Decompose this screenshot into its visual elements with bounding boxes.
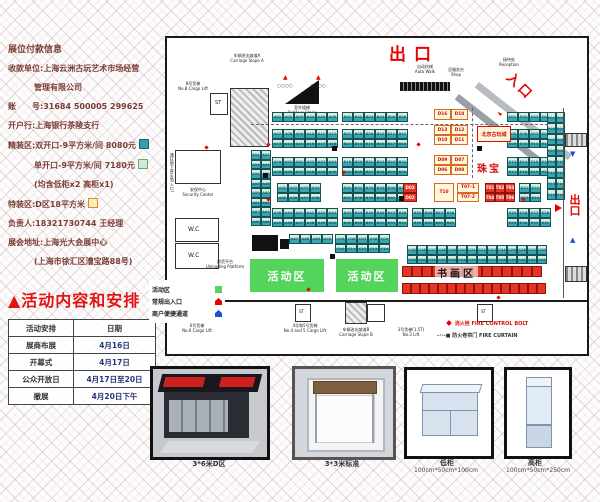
booth-post (372, 394, 374, 443)
booth-cell: B04 (375, 112, 386, 122)
exit-right-label: 出口 (566, 194, 582, 216)
beijing-antique-box: 北京古玩城 (477, 126, 511, 142)
booth-cell: C08 (368, 234, 379, 244)
schedule-row: 公众开放日4月17日至20日 (9, 371, 156, 388)
booth-cell: A27 (294, 167, 305, 177)
booth-cell: D09 (434, 155, 451, 165)
security-room (175, 150, 221, 184)
special-zone-text: 特装区:D区18平方米 (8, 200, 85, 209)
exit-top-label: 出口 (389, 40, 439, 65)
wc-label: W.C (188, 226, 199, 233)
booth-cell (528, 283, 537, 294)
floor-plan: 出口 入口 出口 8号货梯No.8 Cargo Lift ST 车辆进出坡道AC… (165, 36, 589, 356)
booth-block: B43B44B45B46B47B48B49B50B51B52B53B54 (342, 208, 408, 227)
booth-cell: T02 (495, 183, 505, 193)
booth-cell: B50 (353, 218, 364, 228)
booth-cell: T07-1 (457, 183, 479, 193)
booth-cell: B14 (353, 139, 364, 149)
legend-entrance-label: 常规出入口 (152, 297, 212, 306)
booth-cell: B58 (445, 208, 456, 218)
payee-line2: 管理有限公司 (8, 82, 162, 93)
booth-cell: B45 (364, 208, 375, 218)
booth-cell (519, 283, 528, 294)
booth-cell: C11 (346, 244, 357, 254)
booth-cell: A67 (289, 234, 300, 244)
entrance-arrow-icon: ◄ (495, 109, 503, 117)
booth-cell: B13 (342, 139, 353, 149)
booth-block: D16D18 (434, 109, 468, 120)
booth-block: E01E02E03E04 (507, 112, 551, 122)
booth-cell: A70 (322, 234, 333, 244)
booth-cell: C40 (517, 255, 527, 265)
booth-post (315, 394, 317, 443)
double-open-swatch-icon (139, 139, 149, 149)
booth-cell: D02 (403, 193, 417, 203)
slope-b-label: 车辆进出坡道BCarriage Slope B (329, 328, 383, 338)
booth-cell: C29 (407, 255, 417, 265)
shop-label: 总服务台Shop (439, 68, 473, 78)
panel-title: 展位付款信息 (8, 42, 162, 55)
booth-cell: D06 (434, 165, 451, 175)
booth-cell: E03 (529, 112, 540, 122)
booth-cell: C37 (487, 255, 497, 265)
booth-cell: B59 (412, 218, 423, 228)
booth-cell (438, 283, 447, 294)
booth-cell (537, 283, 546, 294)
booth-cell: B43 (342, 208, 353, 218)
price-single-text: 单开口-9平方米/间 7180元 (34, 161, 135, 170)
booth-block: A01A02A03A04A05A06 (272, 112, 338, 122)
booth-wall (315, 395, 376, 443)
booth-roof (158, 374, 263, 392)
booth-block: A67A68A69A70 (289, 234, 333, 244)
booth-cell: T07-2 (457, 193, 479, 203)
booth-cell: A31 (277, 183, 288, 193)
booth-cell: D08 (451, 165, 468, 175)
booth-cell: E07 (529, 129, 540, 139)
account-line: 账 号:31684 500005 299625 (8, 101, 162, 112)
booth-cell: E01 (507, 112, 518, 122)
underground-parking-label: 通往地下停车场(入口) (169, 128, 174, 218)
booth-cell: C09 (379, 234, 390, 244)
escalator-block (565, 266, 587, 282)
booth-cell: A37 (299, 193, 310, 203)
booth-cell: C27 (527, 245, 537, 255)
activity-zone: 活动区 (250, 259, 324, 292)
booth-block: A19A20A21A22A23A24A25A26A27A28A29A30 (272, 157, 338, 176)
booth-cell: A58 (261, 179, 271, 189)
booth-cell: E13 (507, 157, 518, 167)
booth-floor (160, 441, 260, 453)
booth-cell: C15 (407, 245, 417, 255)
booth-cell: E19 (529, 167, 540, 177)
booth-cell (501, 283, 510, 294)
photo-caption-standard: 3*3米标准 (292, 459, 392, 469)
booth-cell: A65 (251, 217, 261, 227)
booth-cell: B23 (386, 157, 397, 167)
booth-cell: F11 (547, 167, 556, 178)
booth-cell: B52 (375, 218, 386, 228)
booth-cell: B37 (342, 193, 353, 203)
fire-bolt-legend: 消火栓 FIRE CONTROL BOLT (447, 320, 528, 327)
fire-curtain-legend-text: 防火卷帘门 FIRE CURTAIN (452, 333, 517, 339)
stage-icon (252, 235, 278, 251)
booth-block: C15C16C17C18C19C20C21C22C23C24C25C26C27C… (407, 245, 547, 264)
schedule-cell: 4月17日至20日 (74, 371, 156, 388)
booth-block: E13E14E15E16E17E18E19E20 (507, 157, 551, 176)
booth-cell: A22 (305, 157, 316, 167)
calligraphy-label: 书画区 (435, 265, 478, 280)
photo-low-cabinet (404, 367, 494, 459)
exit-right-arrow-icon (555, 204, 562, 212)
booth-cell: F07 (547, 145, 556, 156)
booth-cell: C22 (477, 245, 487, 255)
schedule-cell: 公众开放日 (9, 371, 74, 388)
booth-block: T07-1T07-2 (457, 183, 479, 202)
booth-block (402, 283, 546, 294)
booth-cell: B60 (423, 218, 434, 228)
booth-cell: E24 (530, 193, 541, 203)
booth-cell (429, 283, 438, 294)
booth-cell: B51 (364, 218, 375, 228)
booth-cell: C23 (487, 245, 497, 255)
booth-cell: B55 (412, 208, 423, 218)
booth-block: A31A32A33A34A35A36A37A38 (277, 183, 321, 202)
booth-cell: E11 (529, 139, 540, 149)
fire-curtain-icon: –··–■ (437, 333, 451, 339)
booth-cell: C24 (497, 245, 507, 255)
st-label: ST (481, 310, 486, 315)
booth-cell: A33 (299, 183, 310, 193)
schedule-cell: 4月20日下午 (74, 388, 156, 405)
booth-cell: A10 (305, 129, 316, 139)
fire-curtain-line (251, 124, 563, 125)
booth-cell: C06 (346, 234, 357, 244)
fire-curtain-legend: –··–■ 防火卷帘门 FIRE CURTAIN (437, 332, 518, 339)
booth-cell: E10 (518, 139, 529, 149)
bank-line: 开户行:上海银行茶陵支行 (8, 120, 162, 131)
booth-cell: A14 (283, 139, 294, 149)
booth-cell: A36 (288, 193, 299, 203)
booth-cell: A04 (305, 112, 316, 122)
booth-cell: F05 (547, 134, 556, 145)
booth-cell (465, 283, 474, 294)
booth-cell: A63 (251, 207, 261, 217)
booth-cell: A45 (272, 218, 283, 228)
booth-cell: B09 (364, 129, 375, 139)
booth-cell (456, 283, 465, 294)
booth-cell: A46 (283, 218, 294, 228)
booth-cell: A21 (294, 157, 305, 167)
single-open-swatch-icon (138, 159, 148, 169)
booth-cell: A34 (310, 183, 321, 193)
booth-cell: F01 (547, 112, 556, 123)
booth-cell: A59 (251, 188, 261, 198)
booth-cell: B53 (386, 218, 397, 228)
booth-cell: C31 (427, 255, 437, 265)
booth-cell: E31 (529, 218, 540, 228)
booth-cell: C16 (417, 245, 427, 255)
booth-cell: B05 (386, 112, 397, 122)
booth-cell: C14 (379, 244, 390, 254)
bottom-wall (167, 300, 587, 302)
booth-cell: T10 (434, 183, 454, 202)
booth-cell: A60 (261, 188, 271, 198)
pillar-icon (399, 196, 404, 201)
booth-cell: C39 (507, 255, 517, 265)
booth-cell: A49 (316, 218, 327, 228)
merchant-flow-arrow-icon: ▲ (570, 236, 575, 244)
payee-line: 收款单位:上海云洲古玩艺术市场经营 (8, 63, 162, 74)
fire-bolt-icon (446, 320, 452, 326)
booth-cell (411, 283, 420, 294)
booth-cell: B03 (364, 112, 375, 122)
booth-cell: C17 (427, 245, 437, 255)
booth-cell: C36 (477, 255, 487, 265)
booth-block: E25E26E27E28E29E30E31E32 (507, 208, 551, 227)
booth-cell: B17 (386, 139, 397, 149)
booth-cell: B41 (386, 193, 397, 203)
payment-info-panel: 展位付款信息 收款单位:上海云洲古玩艺术市场经营 管理有限公司 账 号:3168… (8, 42, 162, 405)
photo-booth-d-zone (150, 366, 270, 460)
schedule-cell: 展商布展 (9, 337, 74, 354)
booth-cell: D16 (434, 109, 451, 120)
booth-cell (474, 283, 483, 294)
booth-cell: C34 (457, 255, 467, 265)
booth-cell: B47 (386, 208, 397, 218)
booth-cell: A13 (272, 139, 283, 149)
booth-cell: B18 (397, 139, 408, 149)
lift3-room (367, 304, 385, 322)
booth-block: A39A40A41A42A43A44A45A46A47A48A49A50 (272, 208, 338, 227)
booth-cell: B44 (353, 208, 364, 218)
booth-cell: C32 (437, 255, 447, 265)
reception-label: 接待处Reception (489, 58, 529, 68)
booth-block: D03D02 (403, 183, 417, 202)
autowalk-icon (400, 82, 450, 91)
booth-cell: A05 (316, 112, 327, 122)
schedule-cell: 4月16日 (74, 337, 156, 354)
booth-cell: D07 (451, 155, 468, 165)
booth-cell: B02 (353, 112, 364, 122)
lift3-label: 3号货梯(1.5T)No.3 Lift (389, 328, 433, 338)
booth-cell: C42 (537, 255, 547, 265)
merchant-flow-arrow-icon: ▼ (570, 150, 575, 158)
booth-cell: B12 (397, 129, 408, 139)
booth-block: T01T02T03T04T05T06 (485, 183, 515, 202)
booth-block: A07A08A09A10A11A12A13A14A15A16A17A18 (272, 129, 338, 148)
speaker-icon (280, 239, 289, 249)
booth-cell (502, 266, 512, 277)
price-double-line: 精装区:双开口-9平方米/间 8080元 (8, 139, 162, 151)
booth-cell: C26 (517, 245, 527, 255)
booth-cell: A32 (288, 183, 299, 193)
contact-line: 负责人:18321730744 王经理 (8, 218, 162, 229)
activity-zone: 活动区 (336, 259, 398, 292)
booth-cell: A47 (294, 218, 305, 228)
booth-cell: C35 (467, 255, 477, 265)
booth-cell: C18 (437, 245, 447, 255)
booth-cell: A26 (283, 167, 294, 177)
booth-block: C05C06C07C08C09C10C11C12C13C14 (335, 234, 390, 253)
booth-cell: B31 (342, 183, 353, 193)
booth-cell: B39 (364, 193, 375, 203)
schedule-cell: 撤展 (9, 388, 74, 405)
booth-cell: B56 (423, 208, 434, 218)
booth-cell: A15 (294, 139, 305, 149)
booth-cell: E30 (518, 218, 529, 228)
booth-cell: E26 (518, 208, 529, 218)
booth-cell: F13 (547, 178, 556, 189)
booth-cell: D13 (434, 125, 451, 135)
booth-cell: B10 (375, 129, 386, 139)
booth-cell: D18 (451, 109, 468, 120)
booth-cell: A42 (305, 208, 316, 218)
address-line2: (上海市徐汇区漕宝路88号) (8, 256, 162, 267)
booth-cell: C38 (497, 255, 507, 265)
booth-cell: E15 (529, 157, 540, 167)
booth-cell: B19 (342, 157, 353, 167)
booth-cell: A69 (311, 234, 322, 244)
booth-cell: T03 (505, 183, 515, 193)
schedule-table: 活动安排日期展商布展4月16日开幕式4月17日公众开放日4月17日至20日撤展4… (8, 319, 156, 405)
schedule-row: 展商布展4月16日 (9, 337, 156, 354)
booth-cell: B40 (375, 193, 386, 203)
booth-block: B07B08B09B10B11B12B13B14B15B16B17B18 (342, 129, 408, 148)
booth-cell: B29 (386, 167, 397, 177)
booth-cell (532, 266, 542, 277)
booth-cell: B54 (397, 218, 408, 228)
fire-curtain-line (472, 108, 473, 178)
booth-cell: A55 (251, 169, 261, 179)
booth-cell: E21 (519, 183, 530, 193)
booth-cell (420, 283, 429, 294)
booth-cell: B15 (364, 139, 375, 149)
low-cabinet-icon (422, 389, 478, 436)
booth-cell: B01 (342, 112, 353, 122)
booth-cell: B35 (386, 183, 397, 193)
carriage-slope-b (345, 302, 367, 324)
booth-cell: A24 (327, 157, 338, 167)
special-zone-line: 特装区:D区18平方米 (8, 198, 162, 210)
booth-cell: B27 (364, 167, 375, 177)
booth-cell: F03 (547, 123, 556, 134)
booth-cell: A16 (305, 139, 316, 149)
booth-cell: A64 (261, 207, 271, 217)
booth-cell: A11 (316, 129, 327, 139)
booth-cell: C41 (527, 255, 537, 265)
schedule-cell: 活动安排 (9, 320, 74, 337)
beijing-antique-label: 北京古玩城 (481, 131, 506, 138)
booth-cell: B62 (445, 218, 456, 228)
booth-cell: B20 (353, 157, 364, 167)
price-single-line: 单开口-9平方米/间 7180元 (8, 159, 162, 171)
booth-cell: A68 (300, 234, 311, 244)
booth-cell: A07 (272, 129, 283, 139)
booth-cell: C21 (467, 245, 477, 255)
fire-bolt-icon (496, 295, 500, 299)
booth-cell: A28 (305, 167, 316, 177)
jewelry-label: 珠宝 (477, 160, 501, 175)
cargo45-label: 4号和5号货梯No.4 and 5 Cargo Lift (277, 324, 333, 334)
st-label: ST (299, 310, 304, 315)
booth-cell: A02 (283, 112, 294, 122)
booth-cell: A23 (316, 157, 327, 167)
booth-cell: A53 (251, 160, 261, 170)
booth-cell: A12 (327, 129, 338, 139)
booth-cell: C13 (368, 244, 379, 254)
st-label: ST (215, 100, 221, 106)
booth-cell (402, 283, 411, 294)
activity-legend-icon (215, 286, 222, 293)
booth-cell: A48 (305, 218, 316, 228)
booth-cell: C25 (507, 245, 517, 255)
booth-cell: B30 (397, 167, 408, 177)
booth-block: T10 (434, 183, 454, 202)
booth-cell: C20 (457, 245, 467, 255)
booth-cell: A06 (327, 112, 338, 122)
booth-cell: B48 (397, 208, 408, 218)
wc-label: W.C (188, 252, 199, 259)
cargo6-label: 6号货梯No.6 Cargo Lift (175, 324, 219, 334)
booth-cell: A17 (316, 139, 327, 149)
booth-cell (402, 266, 412, 277)
merchant-legend-icon (215, 310, 222, 317)
booth-cell: A44 (327, 208, 338, 218)
booth-cell (492, 266, 502, 277)
booth-cell: B26 (353, 167, 364, 177)
booth-cell: B38 (353, 193, 364, 203)
booth-cell: E02 (518, 112, 529, 122)
booth-cell: A08 (283, 129, 294, 139)
booth-cell: B33 (364, 183, 375, 193)
booth-cell: B06 (397, 112, 408, 122)
booth-cell: T04 (485, 193, 495, 203)
unloading-label: 卸货平台Unloading Platform (203, 260, 247, 270)
photo-caption-d-zone: 3*6米D区 (150, 459, 268, 469)
fire-bolt-icon (416, 142, 420, 146)
booth-cell: B49 (342, 218, 353, 228)
pillar-icon (330, 254, 335, 259)
special-zone-swatch-icon (88, 198, 98, 208)
booth-cell (422, 266, 432, 277)
booth-cell: A57 (251, 179, 261, 189)
booth-cell: A30 (327, 167, 338, 177)
booth-cell: E06 (518, 129, 529, 139)
schedule-heading: ▲活动内容和安排 (8, 287, 162, 311)
booth-cell: E14 (518, 157, 529, 167)
booth-cell: C28 (537, 245, 547, 255)
address-line: 展会地址:上海光大会展中心 (8, 237, 162, 248)
booth-cell (412, 266, 422, 277)
booth-cell: B08 (353, 129, 364, 139)
booth-cell (510, 283, 519, 294)
booth-cell (482, 266, 492, 277)
cabinet-note-line: (均含低柜x2 高柜x1) (8, 179, 162, 190)
booth-cell: C30 (417, 255, 427, 265)
booth-body (164, 392, 248, 438)
photo-size-low: 100cm*50cm*100cm (396, 467, 496, 474)
pillar-icon (332, 146, 337, 151)
booth-cell: A03 (294, 112, 305, 122)
booth-cell: T06 (505, 193, 515, 203)
booth-glass (169, 400, 228, 432)
booth-cell: B61 (434, 218, 445, 228)
photo-booth-standard (292, 366, 396, 460)
booth-cell: B16 (375, 139, 386, 149)
queue-rail-icon: ○○○○ (310, 84, 326, 89)
booth-cell: A35 (277, 193, 288, 203)
